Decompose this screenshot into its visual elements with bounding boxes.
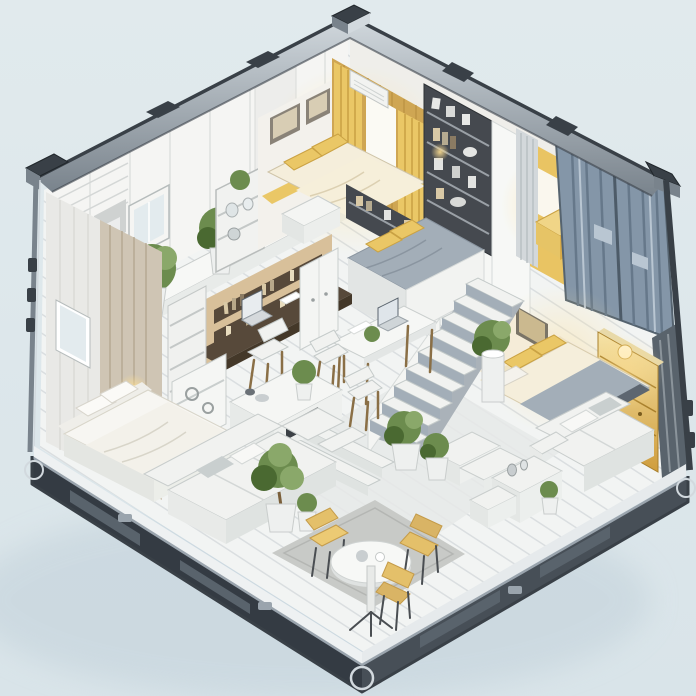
- isometric-scene: [0, 0, 696, 696]
- bowl: [255, 394, 269, 402]
- coffee-table-plant: [292, 360, 316, 384]
- tower-plant: [230, 170, 250, 190]
- table-decor: [356, 550, 368, 562]
- sconce-glow: [431, 143, 449, 161]
- decor-item: [245, 389, 255, 396]
- cup: [376, 553, 385, 562]
- table-plant: [364, 326, 380, 342]
- jar: [508, 464, 517, 476]
- jar: [521, 460, 528, 470]
- container-home-illustration: Isometric cutaway illustration of a ship…: [0, 0, 696, 696]
- cabinet-plant: [540, 481, 558, 499]
